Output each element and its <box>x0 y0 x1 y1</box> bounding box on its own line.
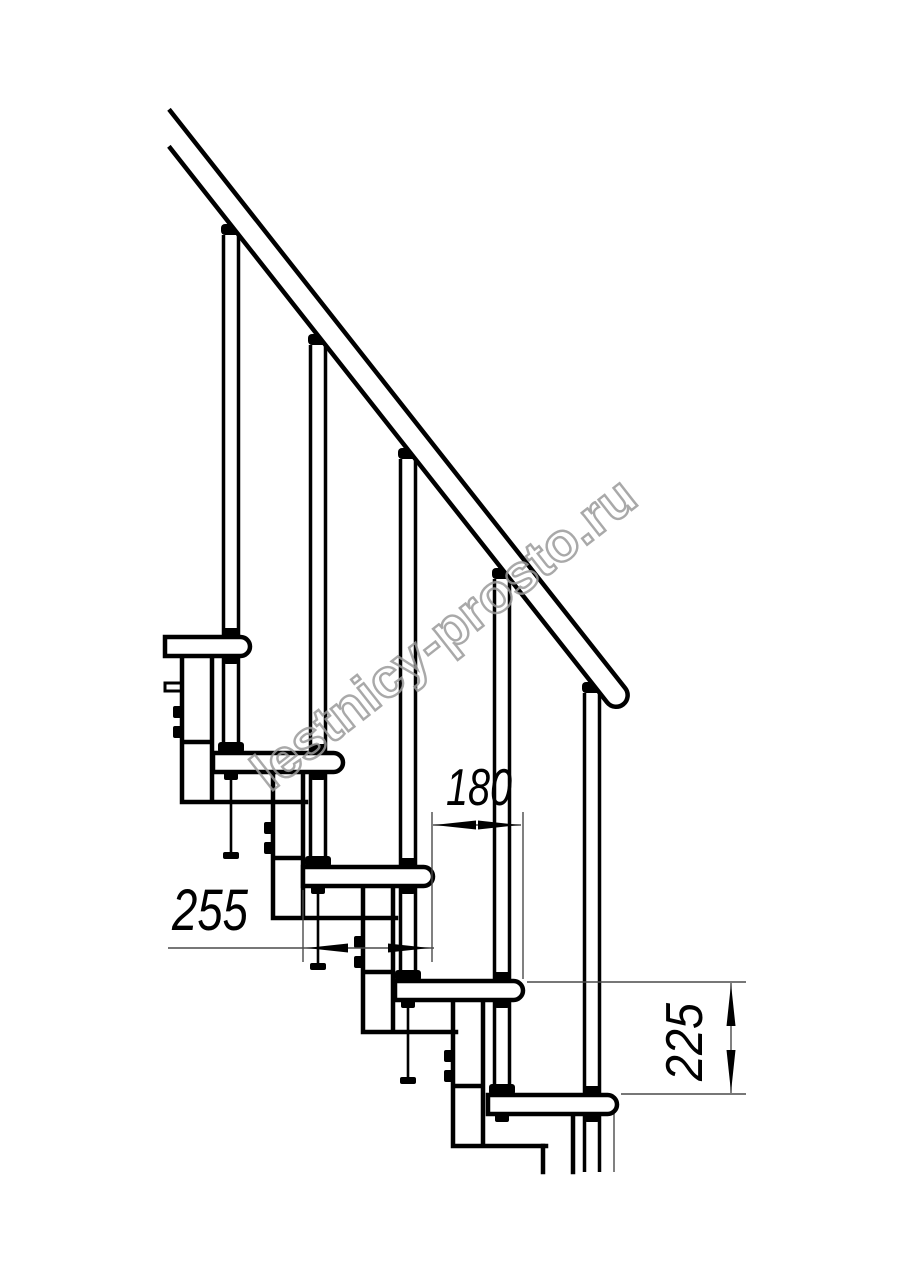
watermark-text: lestnicy-prosto.ru <box>240 465 647 802</box>
arrow-right-icon <box>478 821 520 830</box>
dimension-label-255: 255 <box>171 878 248 943</box>
tread-3 <box>303 867 433 886</box>
tread-1 <box>165 637 250 656</box>
bolt-icon <box>354 956 363 968</box>
module-arm-stub <box>165 683 182 691</box>
bolt-icon <box>173 706 182 718</box>
clamp-icon <box>493 972 511 981</box>
baluster-1-base <box>218 742 244 753</box>
nut-icon <box>311 886 325 894</box>
nut-icon <box>401 886 415 894</box>
bolt-icon <box>173 726 182 738</box>
drawing-canvas: 255 180 225 lestnicy-prosto.ru <box>0 0 914 1280</box>
arrow-up-icon <box>727 984 736 1026</box>
dimension-step-rise: 225 <box>527 982 746 1094</box>
arrow-down-icon <box>727 1050 736 1092</box>
dimension-label-180: 180 <box>446 759 512 817</box>
nut-icon <box>495 1000 509 1008</box>
bolt-icon <box>444 1070 453 1082</box>
nut-icon <box>495 1114 509 1122</box>
staircase-technical-drawing: 255 180 225 lestnicy-prosto.ru <box>0 0 914 1280</box>
support-column-5 <box>543 1114 573 1172</box>
nut-icon <box>401 1000 415 1008</box>
clamp-icon <box>222 628 240 637</box>
baluster-4-tube <box>495 579 510 1084</box>
bolt-icon <box>264 822 273 834</box>
nut-icon <box>585 1114 599 1122</box>
baluster-2-base <box>305 856 331 867</box>
bolt-icon <box>264 842 273 854</box>
rod-end-cap <box>223 852 239 859</box>
rod-end-cap <box>310 963 326 970</box>
baluster-1-tube <box>224 235 239 742</box>
support-column-3 <box>354 886 456 1032</box>
arrow-left-icon <box>434 821 476 830</box>
baluster-4-base <box>489 1084 515 1095</box>
nut-icon <box>224 656 238 664</box>
arrow-left-icon <box>306 944 348 953</box>
clamp-icon <box>583 1086 601 1095</box>
bolt-icon <box>444 1050 453 1062</box>
clamp-icon <box>399 858 417 867</box>
dimension-label-225: 225 <box>656 1002 714 1082</box>
nut-icon <box>224 772 238 780</box>
tread-5 <box>488 1095 617 1114</box>
baluster-3-base <box>395 970 421 981</box>
tread-4 <box>395 981 523 1000</box>
bolt-icon <box>354 936 363 948</box>
rod-end-cap <box>400 1077 416 1084</box>
arrow-right-icon <box>388 944 430 953</box>
